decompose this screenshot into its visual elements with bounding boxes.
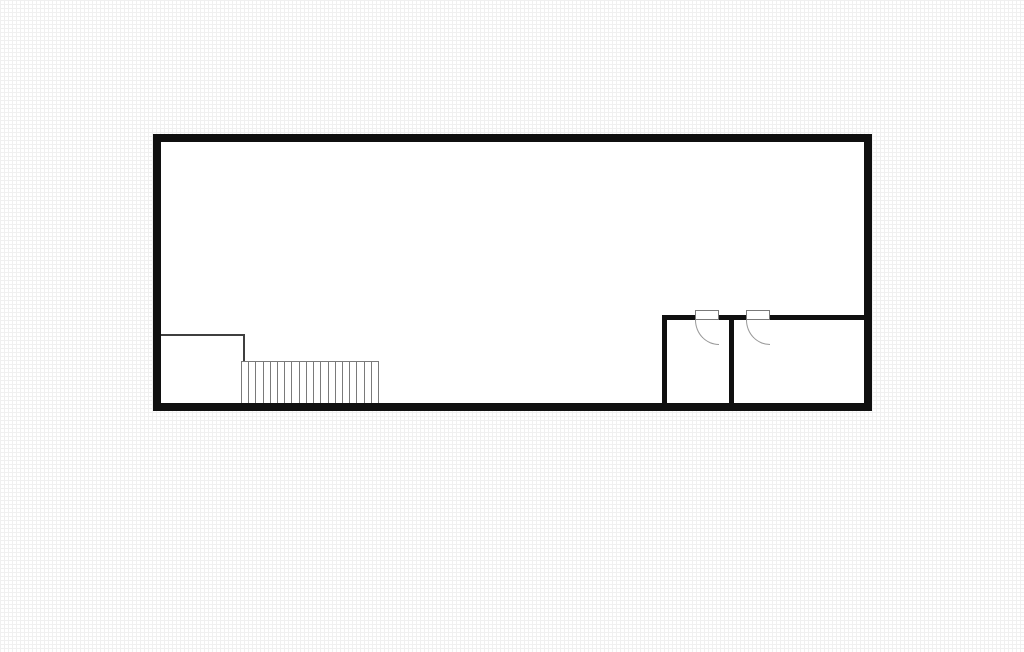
stair-tread [371, 362, 372, 403]
stair-tread [313, 362, 314, 403]
stair-tread [342, 362, 343, 403]
rooms-top-wall-segment-east [770, 315, 865, 320]
stair-landing-line-horizontal [161, 334, 244, 336]
stair-tread [263, 362, 264, 403]
stair-tread [284, 362, 285, 403]
right-room-door-leaf [746, 310, 770, 320]
stair-landing-line-vertical [243, 334, 245, 361]
grid-canvas [0, 0, 1024, 652]
stair-tread [277, 362, 278, 403]
stair-tread [291, 362, 292, 403]
floor-plan [0, 0, 1024, 652]
stair-tread [255, 362, 256, 403]
left-room-door-leaf [695, 310, 719, 320]
stair-tread [349, 362, 350, 403]
stair-tread [299, 362, 300, 403]
stair-tread [378, 362, 379, 403]
stair-tread [248, 362, 249, 403]
stair-tread [320, 362, 321, 403]
stair-tread [364, 362, 365, 403]
stair-tread [328, 362, 329, 403]
room-divider-wall [729, 315, 734, 403]
stair-tread [306, 362, 307, 403]
staircase [241, 361, 379, 403]
left-room-west-wall [662, 315, 667, 403]
stair-tread [356, 362, 357, 403]
stair-tread [241, 362, 242, 403]
stair-tread [270, 362, 271, 403]
stair-tread [335, 362, 336, 403]
